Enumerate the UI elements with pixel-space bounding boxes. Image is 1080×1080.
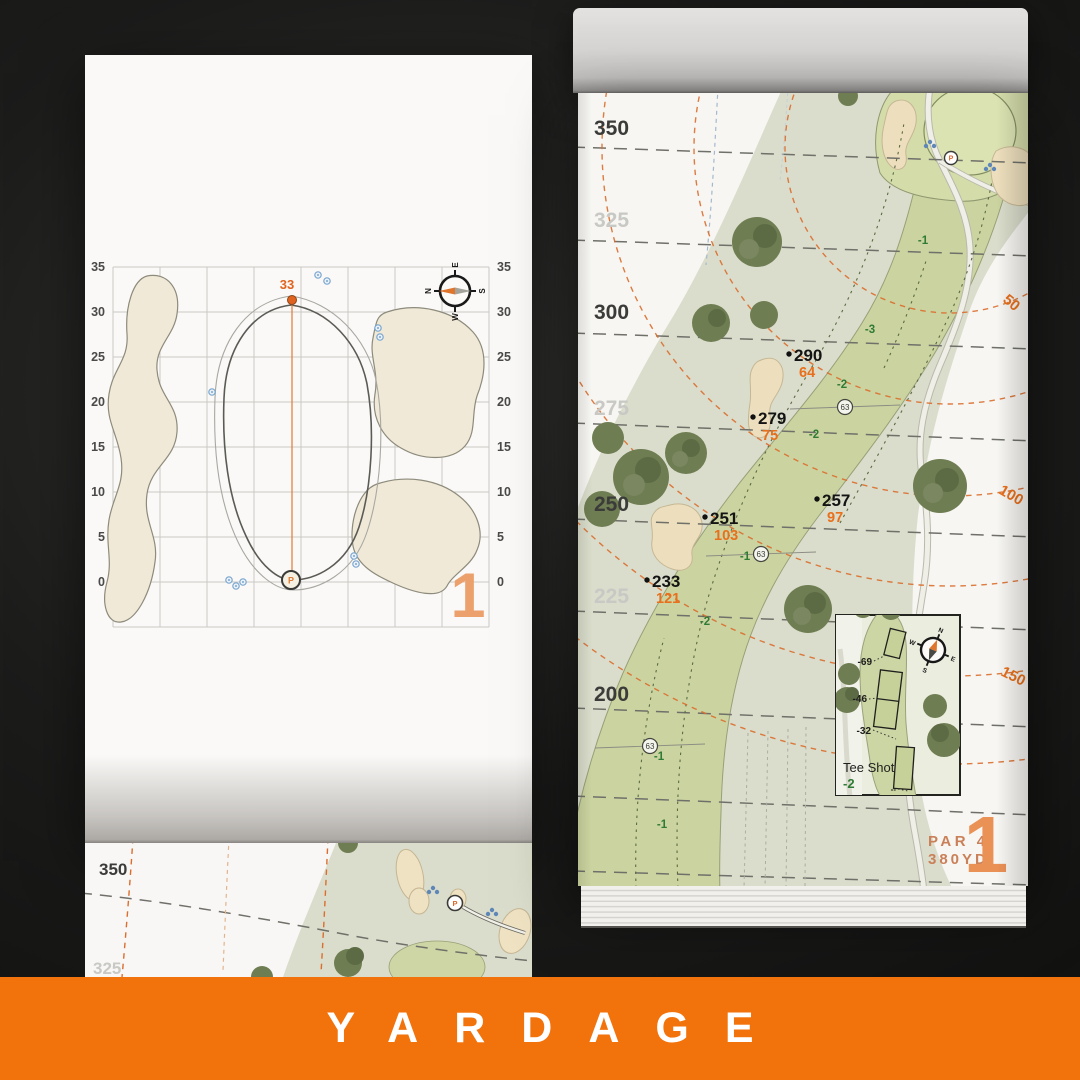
svg-text:0: 0 <box>497 575 504 589</box>
hole-number: 1 <box>450 561 485 631</box>
svg-text:5: 5 <box>98 530 105 544</box>
front-of-green-marker: P <box>282 571 300 589</box>
svg-text:-2: -2 <box>837 379 847 391</box>
pin-marker: P <box>945 152 958 165</box>
flipped-pages-top <box>573 8 1028 93</box>
svg-text:250: 250 <box>594 493 629 516</box>
green-outline-inner <box>224 305 372 580</box>
svg-text:325: 325 <box>594 209 629 232</box>
under-pin-marker: P <box>448 896 463 911</box>
svg-text:5: 5 <box>497 530 504 544</box>
green-detail-map: 35 30 25 20 15 10 5 0 35 30 25 20 15 10 … <box>85 248 515 648</box>
svg-text:P: P <box>452 899 457 908</box>
svg-text:25: 25 <box>91 350 105 364</box>
svg-text:225: 225 <box>594 585 629 608</box>
svg-text:75: 75 <box>762 428 778 444</box>
svg-text:121: 121 <box>656 591 680 607</box>
svg-text:-2: -2 <box>809 429 819 441</box>
svg-text:279: 279 <box>758 409 786 428</box>
svg-text:P: P <box>288 576 294 586</box>
svg-text:20: 20 <box>91 395 105 409</box>
svg-text:350: 350 <box>594 117 629 140</box>
svg-text:35: 35 <box>497 260 511 274</box>
tee-shot-title: Tee Shot <box>843 760 895 775</box>
right-page: P 63 63 63 -1 -3 -2 <box>578 93 1028 886</box>
svg-text:103: 103 <box>714 528 738 544</box>
svg-text:-2: -2 <box>700 616 710 628</box>
hole-map: P 63 63 63 -1 -3 -2 <box>578 93 1028 886</box>
svg-text:W: W <box>451 313 460 321</box>
tee-shot-inset: -69 -46 -32 -- Tee Shot -2 <box>834 598 965 797</box>
svg-text:290: 290 <box>794 346 822 365</box>
svg-text:-69: -69 <box>858 657 873 668</box>
svg-text:10: 10 <box>497 485 511 499</box>
green-map-bunkers <box>105 275 484 622</box>
svg-text:97: 97 <box>827 510 843 526</box>
svg-text:-1: -1 <box>740 551 751 563</box>
svg-text:--: -- <box>891 785 897 794</box>
under-label-325: 325 <box>93 959 121 977</box>
svg-text:N: N <box>424 288 433 294</box>
svg-text:25: 25 <box>497 350 511 364</box>
svg-text:S: S <box>478 288 487 294</box>
hole-number: 1 <box>964 800 1009 886</box>
back-edge-dot <box>288 296 297 305</box>
yardage-banner: YARDAGE <box>0 977 1080 1080</box>
under-page-map: P 350 325 <box>85 843 532 977</box>
svg-text:300: 300 <box>594 301 629 324</box>
svg-text:275: 275 <box>594 397 629 420</box>
svg-text:15: 15 <box>91 440 105 454</box>
green-map-axis-left: 35 30 25 20 15 10 5 0 <box>91 260 105 589</box>
svg-text:233: 233 <box>652 572 680 591</box>
svg-text:-1: -1 <box>657 819 668 831</box>
svg-text:0: 0 <box>98 575 105 589</box>
svg-text:251: 251 <box>710 509 738 528</box>
svg-text:35: 35 <box>91 260 105 274</box>
svg-text:-32: -32 <box>857 726 872 737</box>
svg-text:-1: -1 <box>654 751 665 763</box>
svg-text:64: 64 <box>799 365 815 381</box>
tee-shot-slope: -2 <box>843 776 855 791</box>
svg-text:10: 10 <box>91 485 105 499</box>
svg-text:P: P <box>949 156 954 163</box>
svg-text:15: 15 <box>497 440 511 454</box>
green-map-axis-right: 35 30 25 20 15 10 5 0 <box>497 260 511 589</box>
svg-text:200: 200 <box>594 683 629 706</box>
svg-text:E: E <box>451 262 460 268</box>
green-depth-label: 33 <box>280 277 294 292</box>
svg-text:63: 63 <box>841 403 850 412</box>
svg-text:-46: -46 <box>853 694 868 705</box>
svg-text:20: 20 <box>497 395 511 409</box>
page-edge-stack <box>581 886 1026 928</box>
under-label-350: 350 <box>99 860 127 879</box>
svg-text:63: 63 <box>757 550 766 559</box>
svg-text:-1: -1 <box>918 235 929 247</box>
svg-text:30: 30 <box>91 305 105 319</box>
svg-text:257: 257 <box>822 491 850 510</box>
banner-title: YARDAGE <box>290 1004 789 1053</box>
svg-text:63: 63 <box>646 742 655 751</box>
left-page: 35 30 25 20 15 10 5 0 35 30 25 20 15 10 … <box>85 55 532 843</box>
svg-text:-3: -3 <box>865 324 875 336</box>
svg-text:30: 30 <box>497 305 511 319</box>
left-under-page: P 350 325 <box>85 843 532 977</box>
